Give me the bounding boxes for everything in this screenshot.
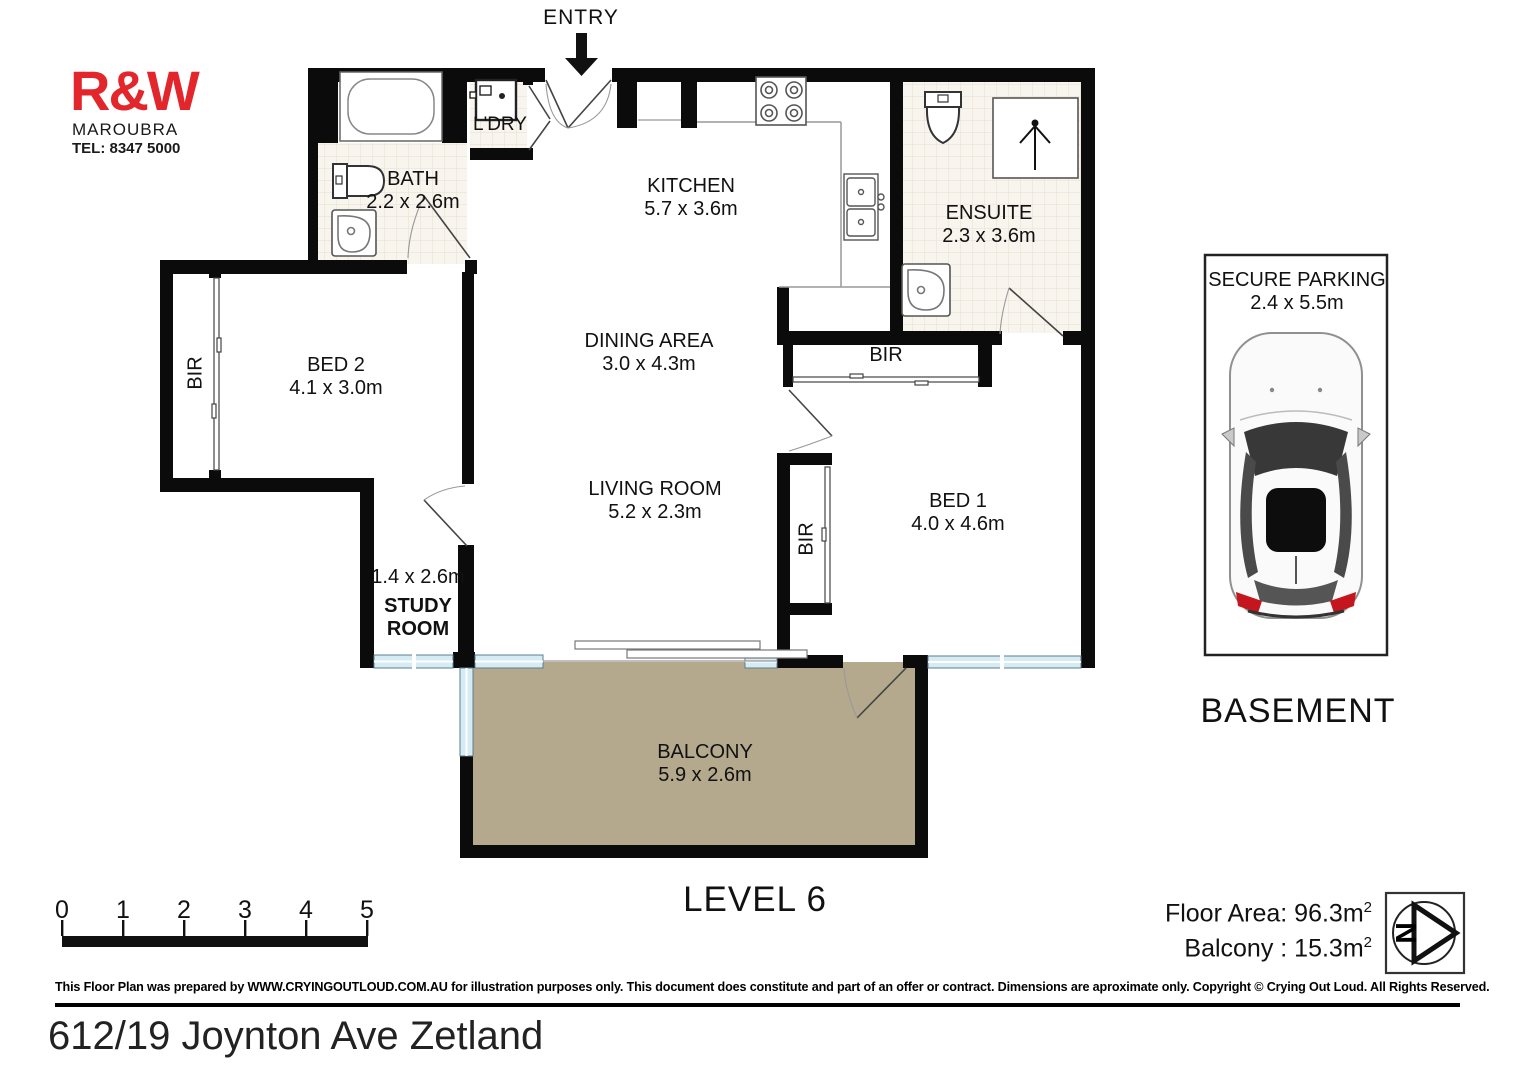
basement-label: BASEMENT <box>1200 692 1395 731</box>
balcony-label: BALCONY 5.9 x 2.6m <box>657 741 753 787</box>
kitchen-sink-icon <box>844 174 884 240</box>
laundry-label: L'DRY <box>473 113 527 136</box>
scale-tick-1: 1 <box>116 896 130 925</box>
scale-tick-3: 3 <box>238 896 252 925</box>
footer-divider <box>55 1003 1460 1007</box>
stove-icon <box>756 77 806 125</box>
disclaimer-text: This Floor Plan was prepared by WWW.CRYI… <box>55 980 1475 994</box>
dining-label: DINING AREA 3.0 x 4.3m <box>585 330 714 376</box>
bed1-label: BED 1 4.0 x 4.6m <box>911 490 1004 536</box>
svg-text:N: N <box>1389 922 1422 944</box>
floor-area-value: Floor Area: 96.3m2 <box>1050 893 1372 928</box>
sliding-door-panels <box>543 641 807 661</box>
level-label: LEVEL 6 <box>683 880 827 920</box>
entry-label: ENTRY <box>543 6 619 30</box>
study-label: 1.4 x 2.6m STUDY ROOM <box>371 566 464 641</box>
ensuite-label: ENSUITE 2.3 x 3.6m <box>942 202 1035 248</box>
scale-tick-5: 5 <box>360 896 374 925</box>
bir-bed1-top-label: BIR <box>869 344 902 367</box>
property-address: 612/19 Joynton Ave Zetland <box>48 1014 543 1059</box>
entry-arrow-icon <box>565 33 598 76</box>
bed2-label: BED 2 4.1 x 3.0m <box>289 354 382 400</box>
living-label: LIVING ROOM 5.2 x 2.3m <box>588 478 721 524</box>
scale-tick-2: 2 <box>177 896 191 925</box>
ensuite-sink-icon <box>902 264 950 316</box>
north-compass-icon: N <box>1386 893 1464 973</box>
scale-tick-0: 0 <box>55 896 69 925</box>
bathtub <box>340 72 442 141</box>
shower-icon <box>993 98 1078 178</box>
agency-logo: R&W <box>70 58 198 123</box>
scale-bar <box>61 920 368 947</box>
scale-tick-4: 4 <box>299 896 313 925</box>
agency-phone: TEL: 8347 5000 <box>72 140 180 157</box>
bath-label: BATH 2.2 x 2.6m <box>366 168 459 214</box>
agency-office: MAROUBRA <box>72 120 178 140</box>
bir-bed2-label: BIR <box>185 356 208 389</box>
kitchen-label: KITCHEN 5.7 x 3.6m <box>644 175 737 221</box>
balcony-area-value: Balcony : 15.3m2 <box>1050 928 1372 963</box>
bir-bed1-side-label: BIR <box>796 522 819 555</box>
bath-sink-icon <box>332 210 376 256</box>
area-summary: Floor Area: 96.3m2 Balcony : 15.3m2 <box>1050 893 1372 964</box>
floor-plan-page: N R&W MAROUBRA TEL: 8347 5000 ENTRY BATH… <box>0 0 1534 1085</box>
wardrobe-tracks <box>209 270 979 603</box>
car-icon <box>1222 333 1370 618</box>
parking-label: SECURE PARKING 2.4 x 5.5m <box>1208 269 1385 315</box>
